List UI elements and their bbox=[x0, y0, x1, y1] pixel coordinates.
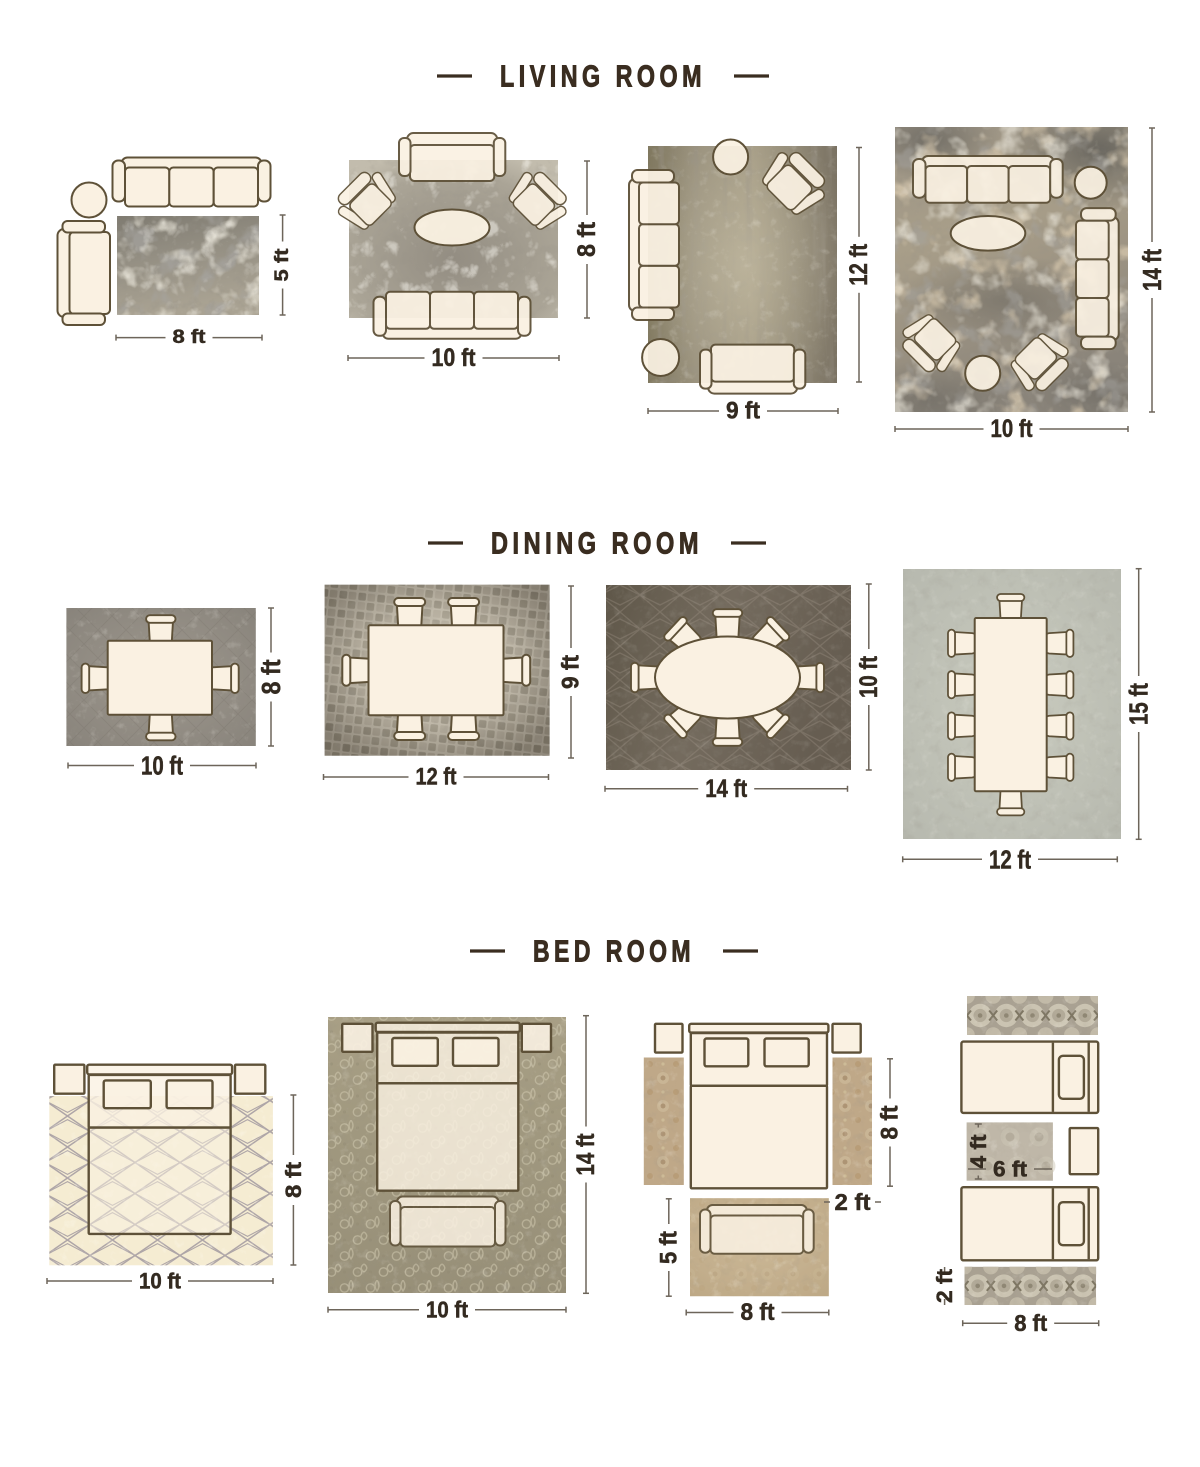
svg-text:14 ft: 14 ft bbox=[705, 775, 748, 803]
svg-text:12 ft: 12 ft bbox=[845, 243, 873, 286]
svg-text:LIVING ROOM: LIVING ROOM bbox=[500, 59, 706, 94]
svg-text:8 ft: 8 ft bbox=[877, 1105, 904, 1139]
svg-text:10 ft: 10 ft bbox=[991, 415, 1034, 443]
svg-text:8 ft: 8 ft bbox=[573, 221, 601, 257]
svg-text:14 ft: 14 ft bbox=[572, 1133, 600, 1176]
svg-text:10 ft: 10 ft bbox=[855, 655, 883, 698]
svg-text:4 ft: 4 ft bbox=[966, 1134, 991, 1169]
svg-text:2 ft: 2 ft bbox=[932, 1268, 957, 1303]
svg-text:10 ft: 10 ft bbox=[139, 1269, 182, 1294]
svg-text:8 ft: 8 ft bbox=[256, 659, 286, 694]
svg-text:15 ft: 15 ft bbox=[1124, 683, 1154, 725]
svg-text:9 ft: 9 ft bbox=[726, 398, 760, 425]
svg-text:BED ROOM: BED ROOM bbox=[533, 934, 695, 969]
svg-text:8 ft: 8 ft bbox=[173, 327, 207, 348]
svg-text:12 ft: 12 ft bbox=[416, 764, 457, 791]
svg-text:DINING ROOM: DINING ROOM bbox=[491, 526, 703, 561]
svg-text:10 ft: 10 ft bbox=[432, 344, 477, 372]
svg-text:14 ft: 14 ft bbox=[1137, 249, 1167, 291]
svg-text:5 ft: 5 ft bbox=[272, 248, 293, 282]
svg-text:10 ft: 10 ft bbox=[141, 751, 183, 781]
svg-text:8 ft: 8 ft bbox=[281, 1161, 306, 1198]
svg-text:10 ft: 10 ft bbox=[426, 1297, 468, 1323]
svg-text:5 ft: 5 ft bbox=[655, 1231, 682, 1264]
svg-text:12 ft: 12 ft bbox=[989, 844, 1031, 874]
svg-text:6 ft: 6 ft bbox=[993, 1157, 1028, 1182]
svg-text:2 ft: 2 ft bbox=[835, 1189, 871, 1215]
svg-text:9 ft: 9 ft bbox=[558, 655, 585, 689]
svg-text:8 ft: 8 ft bbox=[741, 1299, 775, 1326]
svg-text:8 ft: 8 ft bbox=[1014, 1310, 1047, 1336]
